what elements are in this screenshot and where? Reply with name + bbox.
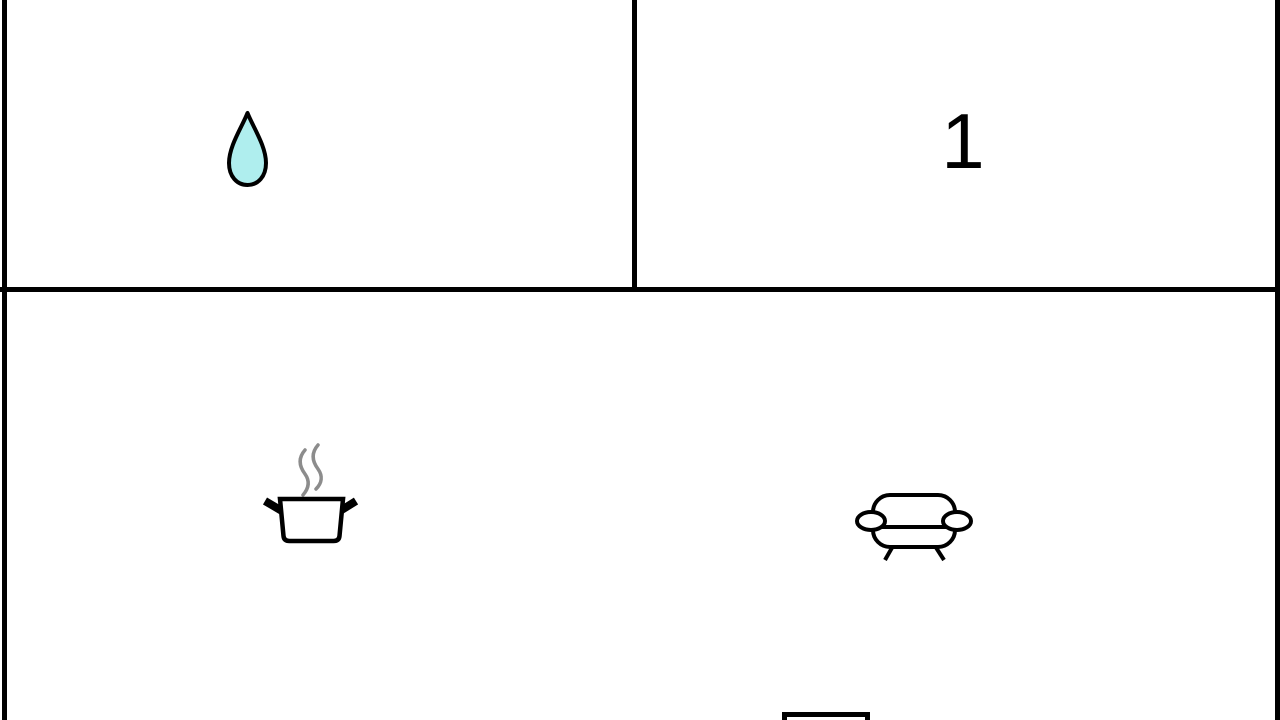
partial-rectangle-icon[interactable]	[782, 712, 870, 720]
room-top-right[interactable]: 1	[637, 0, 1275, 287]
floor-plan-canvas: 1	[0, 0, 1280, 720]
room-bottom[interactable]	[7, 292, 1275, 720]
wall-right	[1275, 0, 1280, 720]
water-drop-shape	[229, 113, 266, 185]
steam-line-right	[313, 445, 321, 489]
sofa-armrest-left	[857, 512, 885, 530]
water-drop-icon[interactable]	[224, 109, 271, 189]
sofa-armrest-right	[943, 512, 971, 530]
pot-body	[280, 499, 343, 541]
cooking-pot-icon[interactable]	[262, 441, 358, 546]
room-number-label: 1	[941, 102, 984, 180]
steam-line-left	[300, 450, 308, 495]
sofa-icon[interactable]	[852, 490, 974, 562]
room-top-left[interactable]	[7, 0, 632, 287]
